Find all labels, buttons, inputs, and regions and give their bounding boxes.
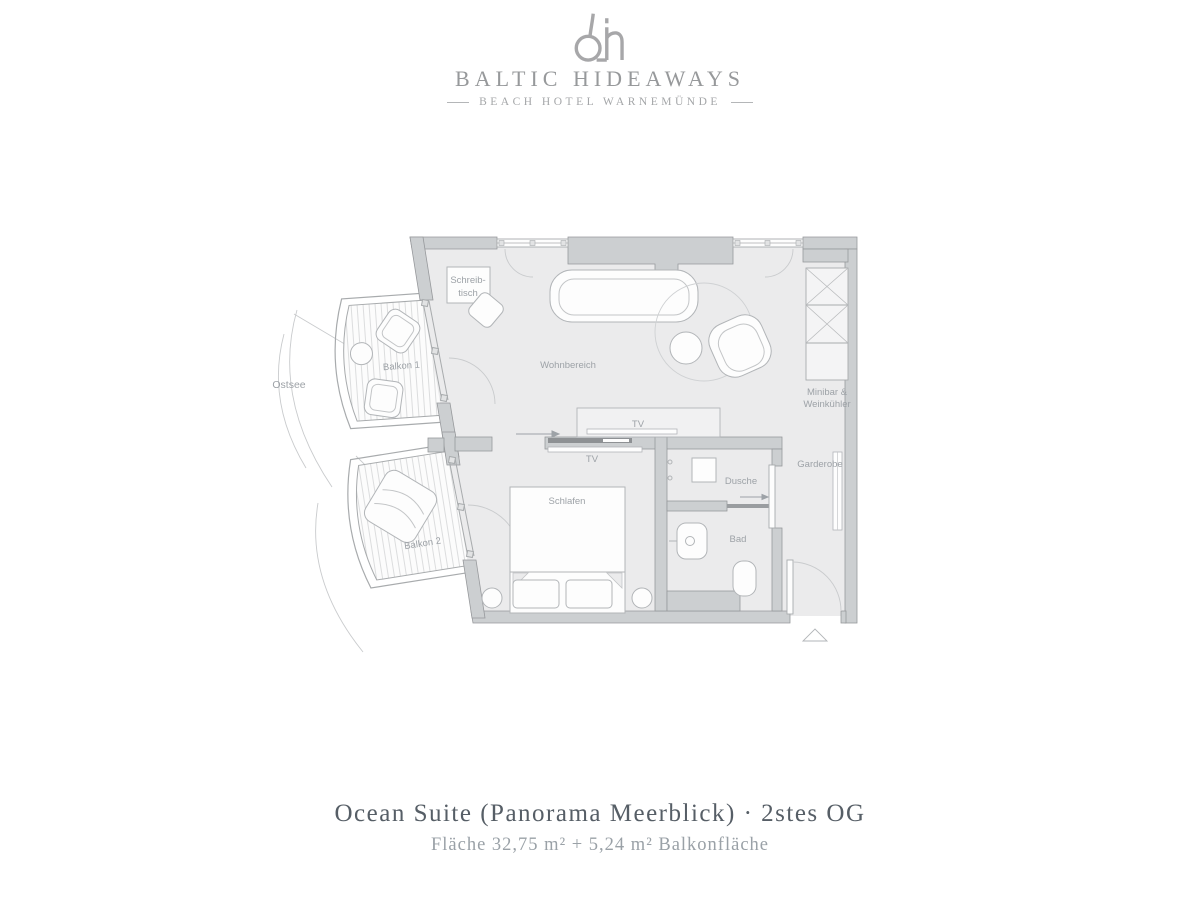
wall-pillar-stub xyxy=(455,437,492,451)
label-tv-living: TV xyxy=(632,419,645,430)
sofa xyxy=(550,270,698,322)
nightstand xyxy=(632,588,652,608)
suite-title: Ocean Suite (Panorama Meerblick) · 2stes… xyxy=(0,800,1200,828)
label-minibar-2: Weinkühler xyxy=(803,399,850,410)
label-garderobe: Garderobe xyxy=(797,459,842,470)
floor-plan-area: Ostsee Balkon 1 Balkon 2 xyxy=(0,0,1200,900)
label-dusche: Dusche xyxy=(725,476,757,487)
lounge-chair xyxy=(363,378,404,419)
view-arc xyxy=(278,334,306,468)
shower-sliding-track xyxy=(727,504,769,508)
wall-bath-bottom xyxy=(667,591,740,611)
floor-plan: Ostsee Balkon 1 Balkon 2 xyxy=(0,0,1200,900)
wall-wardrobe-jog xyxy=(803,249,848,262)
label-schreibtisch-1: Schreib- xyxy=(450,275,485,286)
pillow xyxy=(566,580,612,608)
wall-top-right xyxy=(803,237,857,249)
view-arc xyxy=(290,310,332,487)
label-minibar-1: Minibar & xyxy=(807,387,848,398)
shower-door-panel xyxy=(769,465,775,528)
wall-bath-right-top xyxy=(772,449,782,466)
wall-bedroom-bath xyxy=(655,437,667,611)
label-ostsee: Ostsee xyxy=(272,379,305,391)
label-bad: Bad xyxy=(730,534,747,545)
coffee-table xyxy=(670,332,702,364)
wall-bottom-right xyxy=(841,611,846,623)
footer: Ocean Suite (Panorama Meerblick) · 2stes… xyxy=(0,800,1200,856)
wall-shower-divider xyxy=(667,501,727,511)
label-schlafen: Schlafen xyxy=(549,496,586,507)
toilet xyxy=(733,561,756,596)
wall-pillar-stub xyxy=(428,438,444,452)
nightstand xyxy=(482,588,502,608)
label-wohnbereich: Wohnbereich xyxy=(540,360,596,371)
suite-subtitle: Fläche 32,75 m² + 5,24 m² Balkonfläche xyxy=(0,835,1200,856)
entrance-arrow xyxy=(803,629,827,641)
label-schreibtisch-2: tisch xyxy=(458,288,478,299)
wall-bath-right-bottom xyxy=(772,528,782,611)
wardrobe-minibar xyxy=(806,268,848,380)
pillow xyxy=(513,580,559,608)
label-tv-bedroom: TV xyxy=(586,454,599,465)
tv-sideboard-bedroom xyxy=(548,447,642,452)
view-arc xyxy=(316,503,363,652)
